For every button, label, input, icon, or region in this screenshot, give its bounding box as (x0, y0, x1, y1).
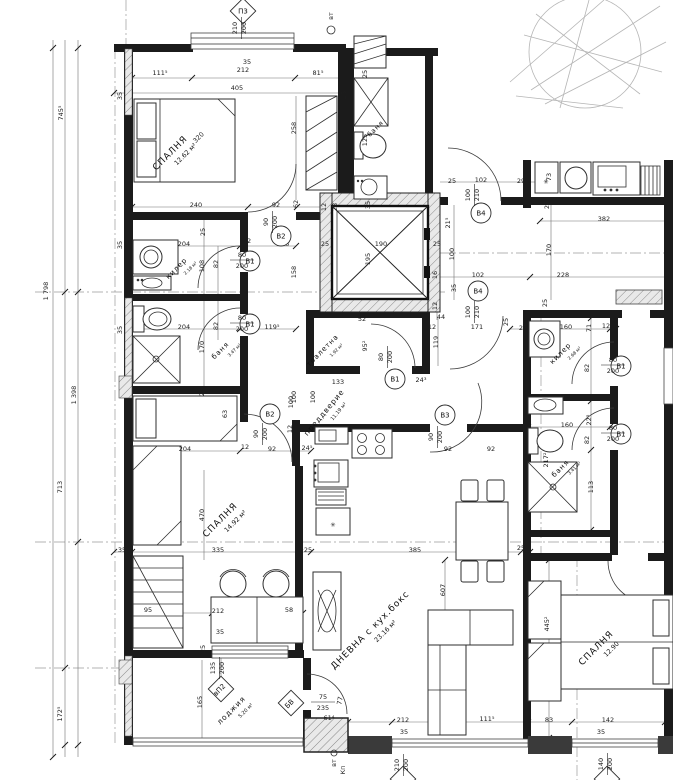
construction-circle-artifact (510, 0, 666, 108)
dimension-label: 35 (364, 201, 372, 209)
door-size-height: 200 (607, 367, 619, 375)
dimension-label: 25 (321, 240, 329, 248)
room-label: баня3.47 м² (210, 335, 243, 368)
dimension-label: 158 (290, 266, 298, 278)
dimension-label: 228 (557, 271, 569, 279)
dimension-label: 25 (541, 299, 549, 307)
dimension-label: 16 (431, 271, 439, 279)
dimension-label: 25 (199, 645, 207, 653)
asterisk-symbol: ✳ (330, 521, 336, 529)
neighbor-kitchen-top-right (535, 162, 660, 195)
dimension-label: 82 (212, 260, 220, 268)
door-tag: В290200 (262, 211, 291, 246)
dimension-label: 102 (472, 271, 484, 279)
door-tag-id: В2 (265, 411, 274, 419)
door-size-width: 80 (609, 424, 617, 432)
dimension-label: 170 (545, 244, 553, 256)
dimension-label: 95² (361, 340, 369, 351)
dimension-label: 160 (560, 323, 572, 331)
door-size-width: 210 (231, 22, 239, 34)
dimension-label: 24³ (416, 376, 427, 384)
door-tag-id: В2 (276, 233, 285, 241)
dimension-label: 113 (587, 481, 595, 493)
dimension-label: 95 (144, 606, 152, 614)
dimension-label: 12 (243, 237, 251, 245)
dimension-label: 71 (585, 324, 593, 332)
dimension-label: 12 (286, 425, 294, 433)
room-name: баня (210, 340, 231, 361)
dimension-label: 102 (475, 176, 487, 184)
dimension-label: 21⁵ (444, 217, 452, 228)
dimension-label: 170 (198, 341, 206, 353)
dimension-label: 204 (178, 240, 190, 248)
door-size-width: 140 (597, 758, 605, 770)
axis-dimension-label: 172⁵ (56, 706, 64, 721)
dimension-label: 82 (212, 322, 220, 330)
floor-plan-drawing: 35111⁵21281⁵405258вт24092623525204121461… (0, 0, 673, 780)
dimension-label: 81⁵ (313, 69, 324, 77)
door-tag: В180200 (230, 251, 260, 271)
shelving-unit (133, 556, 183, 648)
dimension-label: 335 (212, 546, 224, 554)
dimension-label: 25 (340, 91, 348, 99)
dimension-label: 25 (304, 546, 312, 554)
dimension-label: 100 (448, 248, 456, 260)
dimension-label: 52 (358, 315, 366, 323)
dimension-label: 385 (409, 546, 421, 554)
dimension-label: 142 (602, 716, 614, 724)
shower-bath-1 (133, 336, 180, 383)
dimension-label: 92 (487, 445, 495, 453)
dimension-label: 25 (543, 201, 551, 209)
door-size-height: 235 (317, 704, 329, 712)
sink-closet-1 (133, 276, 171, 290)
door-size-height: 200 (236, 325, 248, 333)
dimension-label: 82 (583, 364, 591, 372)
room-label: ДНЕВНА с кух.бокс23.16 м² (329, 589, 419, 679)
dimension-label: 77 (335, 696, 344, 706)
dimension-label: 240 (190, 201, 202, 209)
door-tag-id: В3 (440, 412, 449, 420)
dimension-label: 190 (375, 240, 387, 248)
door-size-width: 210 (393, 759, 401, 771)
door-tag: В4100210 (464, 184, 491, 223)
dimension-label: 100 (287, 396, 295, 408)
dimension-label: 25 (198, 388, 206, 396)
dimension-label: 12 (602, 322, 610, 330)
dimension-label: 24⁵ (302, 444, 313, 452)
dimension-label: 58 (285, 606, 293, 614)
dimension-label: 100 (309, 391, 317, 403)
dimension-label: 82 (583, 436, 591, 444)
dimension-label: 25 (519, 324, 527, 332)
door-size-width: 80 (238, 251, 246, 259)
door-size-width: 75 (319, 693, 327, 701)
dimension-label: 28 (331, 203, 339, 211)
door-size-width: 80 (238, 314, 246, 322)
dimension-label: 83 (545, 716, 553, 724)
side-table-plant (313, 572, 341, 650)
window-tag: вП2135200 (208, 657, 233, 702)
dimension-label: 195 (364, 253, 372, 265)
dimension-label: 92 (272, 201, 280, 209)
door-size-width: 135 (209, 662, 217, 674)
axis-dimension-label: 713 (56, 481, 64, 493)
door-size-width: 100 (464, 306, 472, 318)
dimension-label: 12 (241, 443, 249, 451)
axis-dimension-label: 1 798 (42, 282, 50, 301)
dimension-label: 212 (237, 66, 249, 74)
washing-machine-closet-2 (529, 321, 560, 357)
dimension-label: 25 (199, 228, 207, 236)
dimension-label: 12 (428, 323, 436, 331)
door-size-height: 200 (236, 262, 248, 270)
dimension-label: 171 (471, 323, 483, 331)
dimension-label: 119⁵ (264, 323, 279, 331)
dimension-label: 405 (231, 84, 243, 92)
door-tag-id: В4 (473, 288, 483, 296)
dimension-label: 204 (178, 323, 190, 331)
room-label: СПАЛНЯ14.92 м² (201, 500, 248, 547)
asterisk-symbol: ✳ (543, 178, 549, 186)
dimension-label: 12 (320, 203, 328, 211)
door-tag: В290200 (252, 404, 280, 445)
window-tag: 210200 (390, 754, 415, 780)
room-name: ДНЕВНА с кух.бокс (329, 589, 411, 671)
dimension-label: вт (330, 759, 338, 767)
wardrobe-bedroom-1 (306, 96, 337, 190)
wardrobe-bedroom-2 (133, 446, 181, 545)
axis-dimension-label: 1 398 (70, 386, 78, 405)
door-tag: В4100210 (464, 281, 488, 323)
dimension-label: 25 (433, 240, 441, 248)
dimension-label: 217² (542, 452, 550, 467)
dimension-label: Кп (339, 766, 347, 775)
kitchen-block (314, 427, 392, 535)
dimension-label: 119 (432, 336, 440, 348)
door-size-width: 80 (377, 353, 385, 361)
dimension-label: 35 (116, 326, 124, 334)
window-tag: 140200 (594, 753, 619, 780)
dimension-label: 25 (448, 177, 456, 185)
dimension-label: 111⁵ (479, 715, 494, 723)
door-size-height: 200 (607, 435, 619, 443)
window-tag-id: П3 (238, 8, 248, 16)
door-tag: В180200 (230, 314, 260, 334)
dimension-label: 111⁵ (152, 69, 167, 77)
dimension-label: 28 (306, 326, 314, 334)
dimension-label: 382 (598, 215, 610, 223)
dimension-label: 62 (292, 200, 300, 208)
door-size-width: 100 (464, 189, 472, 201)
dimension-label: 165 (196, 696, 204, 708)
dimension-label: 92 (444, 445, 452, 453)
dimension-label: 25 (502, 318, 510, 326)
door-size-width: 80 (609, 356, 617, 364)
dimension-label: 61⁴ (324, 714, 335, 722)
door-tag: В180200 (601, 356, 631, 376)
door-tag: В180200 (377, 346, 405, 389)
dimension-label: 35 (216, 628, 224, 636)
dimension-label: 35 (400, 728, 408, 736)
dimension-label: 44 (437, 313, 445, 321)
dimension-label: 212 (397, 716, 409, 724)
dimension-label: 108 (198, 260, 206, 272)
dimension-label: 35 (116, 92, 124, 100)
dimension-label: 258 (290, 122, 298, 134)
door-size-width: 90 (427, 433, 435, 441)
bath-2-fixtures (528, 397, 577, 512)
dimension-label: 212 (212, 607, 224, 615)
dimension-label: 445² (543, 616, 551, 631)
dimension-label: 35 (243, 58, 251, 66)
dimension-label: 204 (179, 445, 191, 453)
dimension-label: 160 (561, 421, 573, 429)
dimension-label: 133 (332, 378, 344, 386)
dimension-label: 35 (450, 284, 458, 292)
sofa (428, 610, 513, 735)
dimension-label: 25 (361, 70, 369, 78)
axis-dimension-label: 745⁵ (57, 105, 65, 120)
door-size-width: 90 (252, 430, 260, 438)
door-tag-id: В1 (390, 376, 399, 384)
dimension-label: вт (327, 12, 335, 20)
dimension-label: 12 (431, 302, 439, 310)
dimension-label: 470 (198, 509, 206, 521)
dimension-label: 63 (221, 410, 229, 418)
door-size-width: 90 (262, 218, 270, 226)
dimension-label: 35 (116, 241, 124, 249)
dimension-label: 29 (517, 177, 525, 185)
toilet-bath-1 (133, 306, 171, 332)
dimension-label: 22⁵ (585, 414, 593, 425)
dimension-label: 25 (517, 544, 525, 552)
dimension-label: 607 (439, 584, 447, 596)
floor-plan-page: 35111⁵21281⁵405258вт24092623525204121461… (0, 0, 673, 780)
neighbor-bathroom-top (354, 36, 388, 199)
dimension-label: 35 (118, 546, 126, 554)
dimension-label: 92 (268, 445, 276, 453)
dining-table (456, 480, 508, 582)
door-tag-id: В4 (476, 210, 486, 218)
door-tag: В390200 (427, 405, 455, 448)
dimension-label: 35 (597, 728, 605, 736)
